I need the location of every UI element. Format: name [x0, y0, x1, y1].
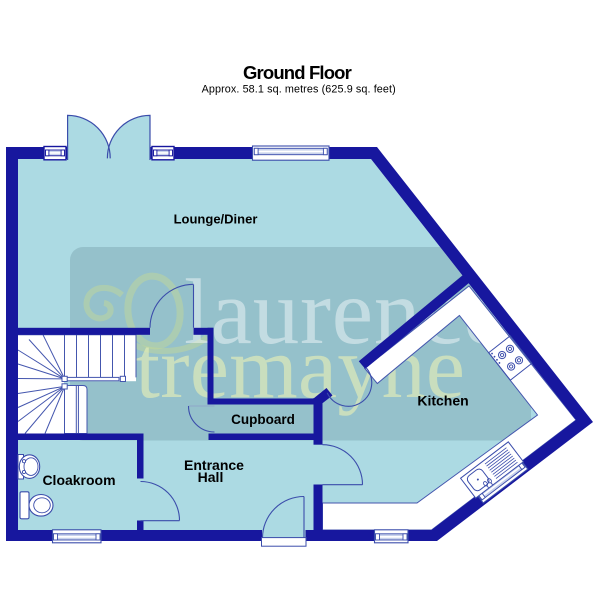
svg-text:Kitchen: Kitchen: [417, 393, 468, 409]
svg-text:Lounge/Diner: Lounge/Diner: [174, 212, 258, 227]
svg-text:Cupboard: Cupboard: [231, 412, 295, 427]
svg-text:Approx. 58.1 sq. metres (625.9: Approx. 58.1 sq. metres (625.9 sq. feet): [202, 84, 396, 96]
svg-text:Hall: Hall: [198, 469, 224, 485]
svg-text:Cloakroom: Cloakroom: [42, 472, 115, 488]
svg-text:Ground Floor: Ground Floor: [243, 62, 352, 83]
